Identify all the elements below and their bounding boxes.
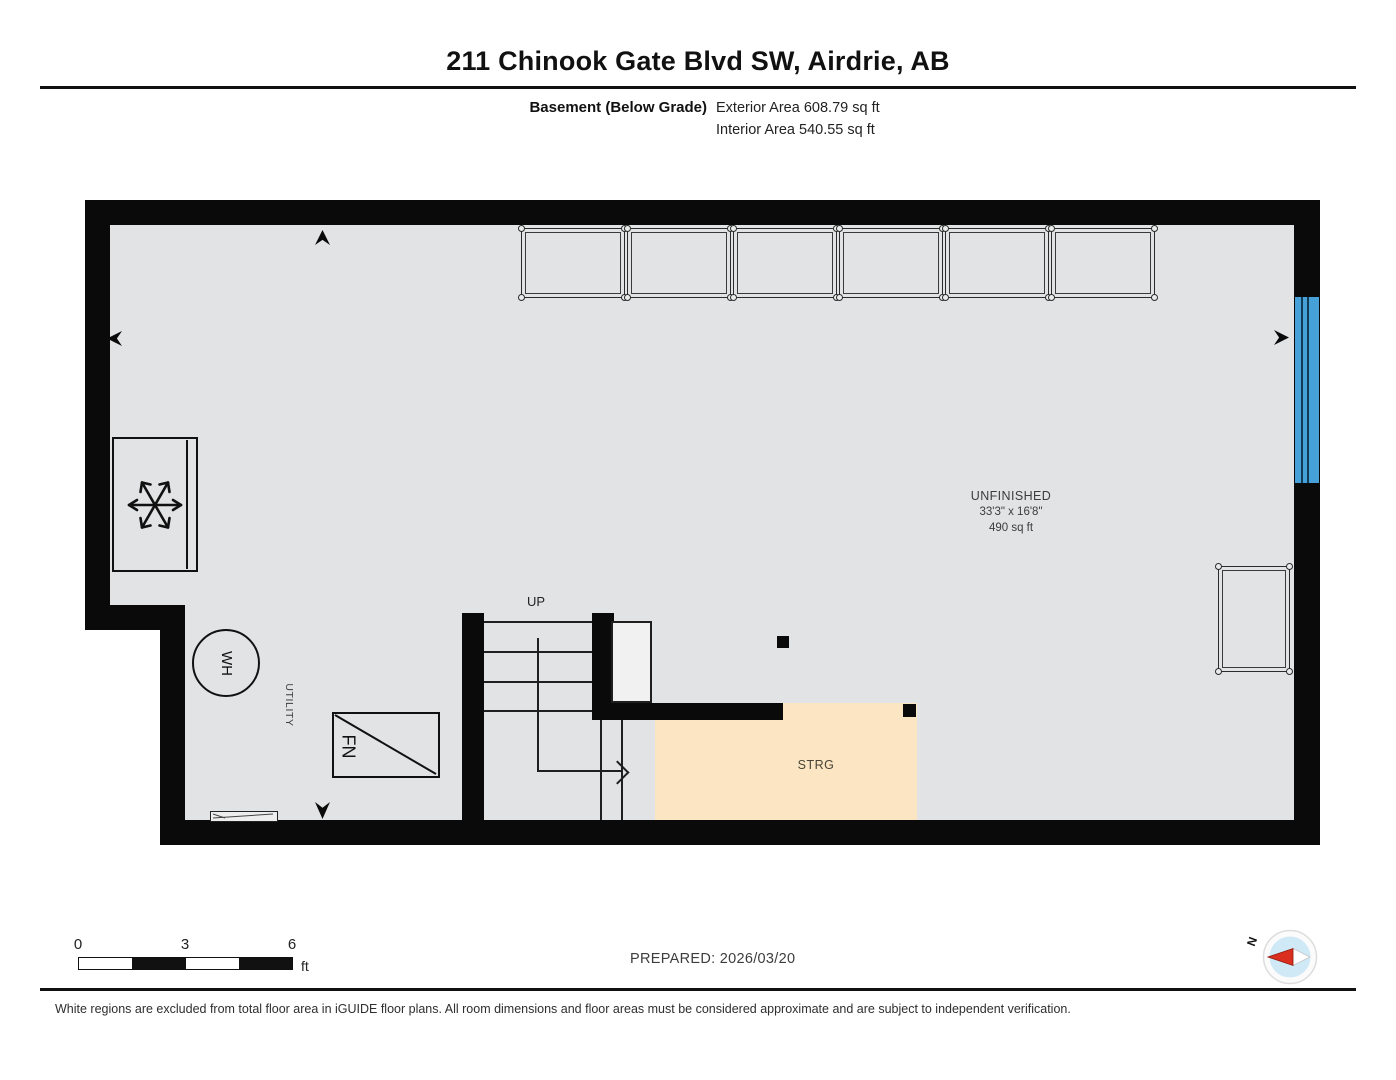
stairs-up-label: UP <box>514 594 558 609</box>
storage-rack <box>945 228 1049 298</box>
scale-unit: ft <box>301 958 309 974</box>
post-column-storage <box>903 704 916 717</box>
page-title: 211 Chinook Gate Blvd SW, Airdrie, AB <box>0 46 1396 77</box>
floor-label: Basement (Below Grade) <box>0 99 707 116</box>
window-pane-line <box>1301 297 1303 483</box>
compass <box>1262 929 1318 990</box>
storage-rack <box>733 228 837 298</box>
stair-lower-run-line <box>600 720 602 820</box>
storage-rack <box>839 228 943 298</box>
storage-room-label: STRG <box>756 758 876 772</box>
interior-area: Interior Area 540.55 sq ft <box>716 122 875 138</box>
window <box>1295 297 1319 483</box>
stair-tread <box>484 621 592 623</box>
furnace: FN <box>332 712 440 778</box>
scale-bar <box>78 957 293 970</box>
shelf-unit <box>1218 566 1290 672</box>
wall-stair-left <box>462 613 484 820</box>
scale-tick-3: 3 <box>170 936 200 953</box>
disclaimer-text: White regions are excluded from total fl… <box>55 1002 1071 1016</box>
window-pane-line <box>1307 297 1309 483</box>
plan-step-cutout <box>85 630 160 821</box>
compass-north-label: N <box>1244 930 1262 948</box>
exterior-area: Exterior Area 608.79 sq ft <box>716 100 880 116</box>
door-panel <box>611 621 652 703</box>
header-divider <box>40 86 1356 89</box>
utility-room-label: UTILITY <box>281 670 295 740</box>
stair-direction-line <box>537 638 539 772</box>
unfinished-room-label: UNFINISHED 33'3" x 16'8" 490 sq ft <box>931 488 1091 536</box>
water-heater: WH <box>192 629 260 697</box>
freezer <box>112 437 198 572</box>
wall-bottom <box>160 820 1320 845</box>
room-name: UNFINISHED <box>931 488 1091 504</box>
snowflake-icon <box>123 473 187 537</box>
water-heater-label: WH <box>218 651 235 676</box>
stair-lower-run-line <box>621 720 623 820</box>
room-area: 490 sq ft <box>931 520 1091 536</box>
wall-storage-top <box>592 703 783 720</box>
compass-icon <box>1262 929 1318 985</box>
ledge-detail <box>211 812 276 820</box>
storage-rack <box>521 228 625 298</box>
floorplan-page: 211 Chinook Gate Blvd SW, Airdrie, AB Ba… <box>0 0 1396 1080</box>
ledge <box>210 811 278 822</box>
footer-divider <box>40 988 1356 991</box>
scale-tick-6: 6 <box>277 936 307 953</box>
wall-left-lower <box>160 605 185 845</box>
storage-rack <box>1051 228 1155 298</box>
furnace-label: FN <box>338 727 359 767</box>
wall-left-upper <box>85 200 110 630</box>
wall-top <box>85 200 1320 225</box>
room-dimensions: 33'3" x 16'8" <box>931 504 1091 520</box>
post-column <box>777 636 789 648</box>
storage-rack <box>627 228 731 298</box>
prepared-date: PREPARED: 2026/03/20 <box>630 951 795 967</box>
scale-tick-0: 0 <box>63 936 93 953</box>
